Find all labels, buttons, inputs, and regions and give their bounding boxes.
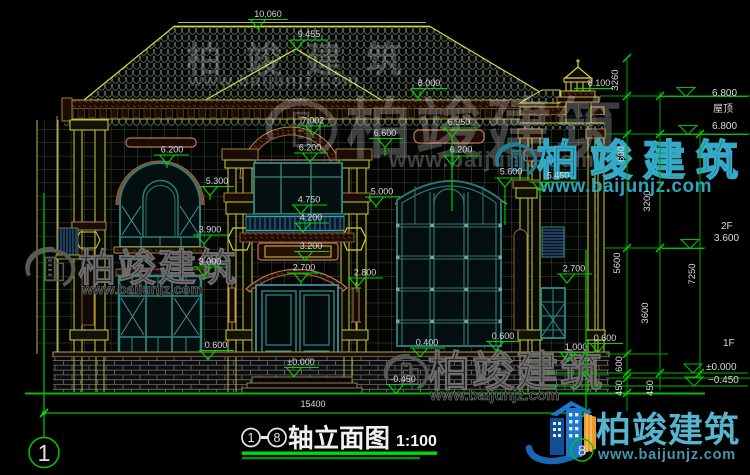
svg-text:±0.000: ±0.000 [706, 362, 737, 373]
svg-text:2.800: 2.800 [354, 268, 377, 278]
svg-text:0.600: 0.600 [594, 333, 617, 343]
svg-text:8: 8 [274, 431, 281, 445]
svg-text:2F: 2F [721, 221, 733, 232]
svg-text:www.baijunjz.com: www.baijunjz.com [429, 387, 559, 404]
svg-text:5.300: 5.300 [206, 176, 229, 186]
svg-text:6.200: 6.200 [450, 145, 473, 155]
svg-text:www.baijunjz.com: www.baijunjz.com [597, 447, 736, 463]
svg-text:3.200: 3.200 [300, 241, 323, 251]
svg-text:5600: 5600 [612, 252, 623, 273]
svg-text:2.700: 2.700 [563, 264, 586, 274]
svg-text:3600: 3600 [640, 302, 651, 323]
svg-text:7250: 7250 [687, 263, 698, 284]
svg-text:450: 450 [645, 380, 656, 396]
svg-text:3.900: 3.900 [199, 225, 222, 235]
svg-text:-0.450: -0.450 [390, 374, 416, 384]
svg-text:3260: 3260 [610, 69, 621, 90]
svg-text:9.455: 9.455 [298, 29, 321, 39]
svg-text:3.600: 3.600 [714, 233, 739, 244]
svg-text:1: 1 [38, 440, 51, 466]
svg-text:−0.450: −0.450 [708, 375, 739, 386]
svg-text:8.000: 8.000 [418, 78, 441, 88]
svg-text:±0.000: ±0.000 [287, 357, 314, 367]
svg-text:0.600: 0.600 [492, 331, 515, 341]
svg-text:2.700: 2.700 [293, 263, 316, 273]
svg-text:5.600: 5.600 [500, 167, 523, 177]
svg-text:1.000: 1.000 [565, 342, 588, 352]
svg-text:轴立面图: 轴立面图 [288, 424, 390, 453]
svg-text:www.baijunjz.com: www.baijunjz.com [81, 281, 203, 297]
svg-text:5.000: 5.000 [371, 187, 394, 197]
svg-text:8: 8 [578, 443, 586, 460]
svg-text:8.100: 8.100 [588, 78, 611, 88]
svg-text:600: 600 [614, 356, 625, 372]
svg-text:4.200: 4.200 [300, 213, 323, 223]
svg-text:www.baijunjz.com: www.baijunjz.com [188, 71, 360, 90]
svg-text:屋顶: 屋顶 [713, 103, 733, 115]
svg-text:0.600: 0.600 [205, 340, 228, 350]
svg-text:4.750: 4.750 [298, 195, 321, 205]
svg-text:15400: 15400 [300, 399, 325, 409]
svg-text:6.200: 6.200 [299, 143, 322, 153]
svg-text:6.200: 6.200 [161, 145, 184, 155]
svg-text:450: 450 [614, 380, 625, 396]
svg-text:600: 600 [616, 146, 627, 162]
svg-text:柏竣建筑: 柏竣建筑 [596, 410, 740, 450]
svg-text:5.450: 5.450 [547, 171, 570, 181]
svg-text:6.950: 6.950 [448, 117, 471, 127]
svg-text:3200: 3200 [642, 190, 653, 211]
svg-text:6.800: 6.800 [712, 121, 737, 132]
svg-text:6.800: 6.800 [712, 88, 737, 99]
svg-text:1:100: 1:100 [396, 433, 437, 450]
svg-text:1F: 1F [723, 338, 735, 349]
svg-text:1: 1 [248, 431, 255, 445]
svg-text:0.400: 0.400 [416, 338, 439, 348]
svg-text:10.060: 10.060 [254, 9, 282, 19]
svg-text:3.000: 3.000 [199, 257, 222, 267]
svg-text:6.600: 6.600 [374, 128, 397, 138]
svg-text:7.002: 7.002 [302, 116, 325, 126]
